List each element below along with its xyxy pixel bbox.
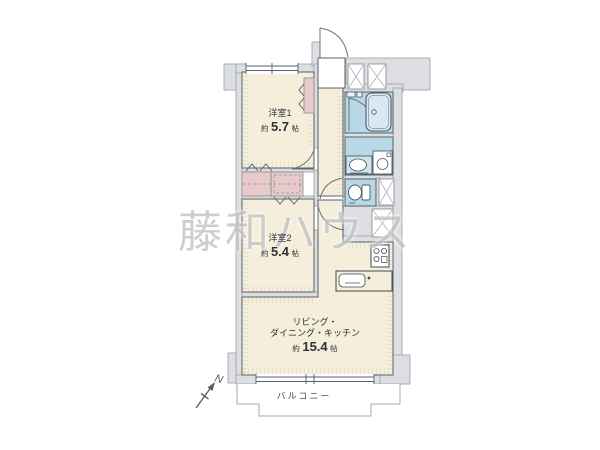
bedroom1-label: 洋室1 約 5.7 帖 [238, 108, 322, 136]
wall-bath-washroom [345, 133, 393, 137]
bathroom-counter-icon [347, 92, 362, 97]
north-label: N [213, 372, 224, 386]
balcony-label: バルコニー [262, 391, 346, 402]
bedroom1-name: 洋室1 [268, 108, 291, 118]
north-arrow-icon [196, 382, 215, 408]
bedroom2-area-value: 5.4 [271, 244, 289, 259]
bedroom1-area-unit: 帖 [292, 124, 300, 133]
washbasin-icon [346, 156, 372, 174]
bedroom2-area-unit: 帖 [292, 249, 300, 258]
ldk-name-line1: リビング・ [292, 317, 337, 327]
window-balcony [256, 374, 374, 385]
floorplan-canvas: N 藤和ハウス 洋室1 約 5.7 帖 洋室2 約 5.4 帖 リビング・ ダイ… [0, 0, 600, 450]
bedroom2-label: 洋室2 約 5.4 帖 [238, 233, 322, 261]
ldk-area-unit: 帖 [330, 344, 338, 353]
window-bedroom1 [246, 63, 298, 74]
bedroom2-area-prefix: 約 [261, 249, 269, 258]
ldk-label: リビング・ ダイニング・キッチン 約 15.4 帖 [252, 317, 378, 356]
bedroom1-area-value: 5.7 [271, 119, 289, 134]
bedroom1-area-prefix: 約 [261, 124, 269, 133]
closet-bedroom1 [242, 172, 271, 196]
ldk-name-line2: ダイニング・キッチン [270, 328, 360, 338]
entrance-floor [318, 58, 345, 88]
bathtub-icon [366, 93, 391, 131]
ldk-area-prefix: 約 [292, 344, 300, 353]
bedroom2-name: 洋室2 [268, 233, 291, 243]
entrance-door [320, 28, 348, 58]
wall-bed2-ldk [242, 292, 318, 297]
balcony-name: バルコニー [277, 391, 332, 401]
washing-machine-icon [373, 151, 392, 174]
wall-washroom-toilet [345, 175, 393, 179]
pillar-bottom-left [228, 353, 236, 383]
kitchen-counter-icon [336, 271, 392, 291]
ldk-area-value: 15.4 [302, 339, 327, 354]
